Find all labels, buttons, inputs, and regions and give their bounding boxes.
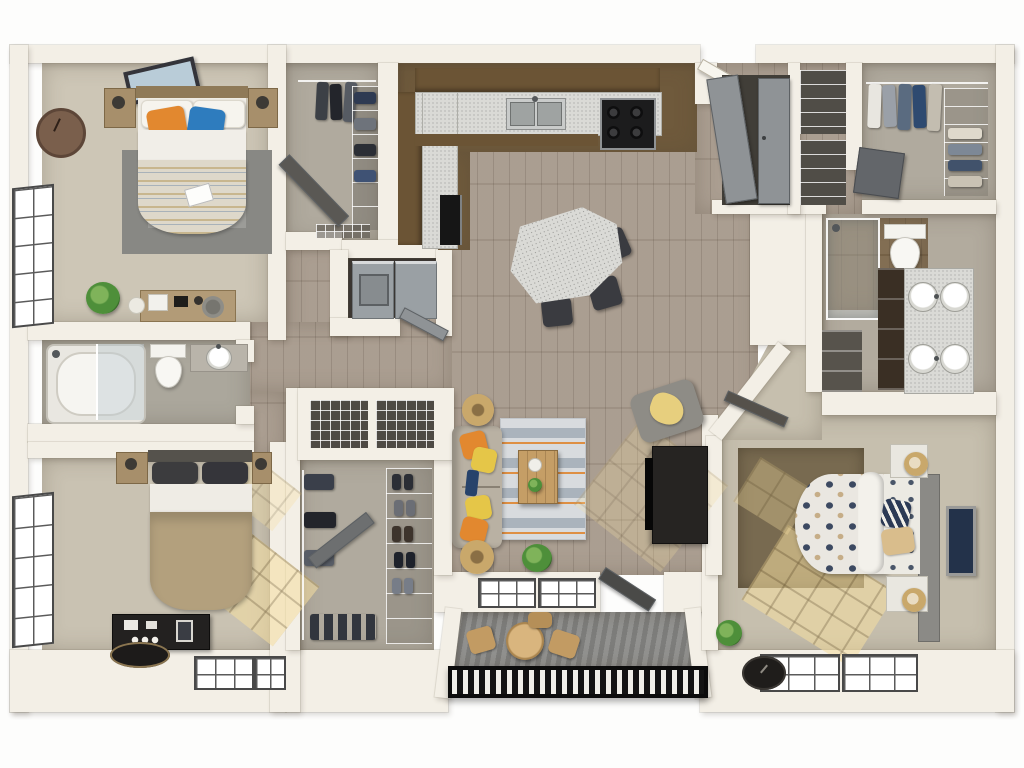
bed-fold-bedroom1 xyxy=(138,130,246,160)
hanging-clothes xyxy=(304,474,334,490)
closet1-wire-shelves xyxy=(352,86,378,230)
faucet-icon xyxy=(934,356,939,361)
window-living-2 xyxy=(538,578,596,608)
shoes-pair xyxy=(392,526,401,542)
closet1-basket xyxy=(316,224,370,238)
shoes-pair xyxy=(406,500,415,516)
floor-plan-canvas xyxy=(0,0,1024,768)
tv xyxy=(645,458,653,530)
burner xyxy=(607,106,620,119)
sink-basin-right xyxy=(537,102,562,126)
window-living-1 xyxy=(478,578,536,608)
door-handle-icon xyxy=(762,136,766,140)
woven-lamp xyxy=(904,452,928,476)
balcony-railing xyxy=(448,666,708,698)
hanging-clothes xyxy=(315,82,329,121)
printer xyxy=(148,294,168,311)
pillow-navy-striped xyxy=(880,498,912,530)
table-lamp-icon xyxy=(255,458,267,470)
folded-clothes xyxy=(354,144,376,156)
hanging-clothes xyxy=(912,85,926,128)
folded-clothes xyxy=(354,92,376,104)
wall-clock xyxy=(36,108,86,158)
desk-item-white xyxy=(146,621,157,629)
burner xyxy=(630,106,643,119)
burner xyxy=(630,126,643,139)
shelf-unit-basket-left xyxy=(310,400,368,448)
woven-lamp xyxy=(902,588,926,612)
closet2-dresser xyxy=(853,147,905,199)
pillow-dark xyxy=(202,462,248,484)
bed-headboard-bedroom1 xyxy=(136,86,248,98)
vanity-stool-white xyxy=(128,297,145,314)
folded-clothes-stack xyxy=(948,128,982,139)
window-bedroom2-left xyxy=(12,492,54,648)
shower-glass xyxy=(96,344,144,420)
folded-clothes-stack xyxy=(948,176,982,187)
tablet xyxy=(176,620,193,642)
bed-headboard-master xyxy=(918,474,940,642)
hanging-clothes xyxy=(882,85,897,128)
shoes-pair xyxy=(392,474,401,490)
wall-bath1-right-b xyxy=(236,406,254,424)
window-bedroom2-bottom-2 xyxy=(254,656,286,690)
wall-outer-bottom-mid xyxy=(286,650,448,712)
round-side-table xyxy=(462,394,494,426)
desk-stool xyxy=(202,296,224,318)
faucet-icon xyxy=(532,96,538,102)
hanging-clothes xyxy=(927,84,942,132)
washer-door xyxy=(359,274,389,306)
bath2-drawer-tower xyxy=(878,268,904,390)
window-bedroom2-bottom-1 xyxy=(194,656,254,690)
closet2-rod xyxy=(866,82,988,84)
closet1-rod xyxy=(298,80,376,82)
wall-bath2-bottom xyxy=(822,392,996,415)
table-lamp-icon xyxy=(125,458,137,470)
bed-sheet-bedroom2 xyxy=(150,484,252,512)
window-master-2 xyxy=(842,654,918,692)
shoes-pair xyxy=(394,552,403,568)
wall-outer-top xyxy=(10,45,700,63)
shoes-pair xyxy=(392,578,401,594)
faucet-icon xyxy=(216,344,221,349)
round-side-table xyxy=(460,540,494,574)
hanging-clothes xyxy=(867,84,882,128)
picture-frame-master xyxy=(946,506,976,576)
pillow-dark xyxy=(152,462,198,484)
linen-nook xyxy=(822,330,862,392)
coffee-table-bowl xyxy=(528,458,542,472)
oval-rug-bedroom2 xyxy=(110,642,170,668)
vanity-sink xyxy=(940,282,970,312)
shoes-pair xyxy=(406,552,415,568)
wall-bath2-left xyxy=(806,214,822,392)
wall-living-bottom-right xyxy=(664,572,706,612)
vanity-sink xyxy=(940,344,970,374)
hanging-clothes xyxy=(897,84,912,130)
faucet-icon xyxy=(934,294,939,299)
wall-top-band-right-b xyxy=(862,200,996,214)
range-stove xyxy=(600,98,656,150)
table-lamp-icon xyxy=(112,96,125,109)
tv-console xyxy=(652,446,708,544)
burner xyxy=(607,126,620,139)
shower-master xyxy=(826,218,880,320)
shoes-pair xyxy=(404,474,413,490)
shoes-pair xyxy=(394,500,403,516)
sink-basin-left xyxy=(510,102,535,126)
wall-bath1-bottom xyxy=(28,424,254,442)
folded-clothes xyxy=(354,118,376,130)
wall-laundry-right xyxy=(436,250,452,336)
coffee-table-plant xyxy=(528,478,542,492)
showerhead-icon xyxy=(52,350,60,358)
dishwasher xyxy=(440,195,462,245)
bed-roll-master xyxy=(858,472,884,574)
wall-laundry-bottom xyxy=(330,318,400,336)
vanity-sink xyxy=(206,346,232,370)
wall-outer-top-right xyxy=(756,45,1014,63)
kitchen-cabinet-front-strip xyxy=(415,134,598,146)
patio-chair xyxy=(528,612,552,628)
window-bedroom1-left xyxy=(12,184,54,328)
wall-bath1-top xyxy=(28,322,250,340)
folded-clothes xyxy=(354,170,376,182)
dryer xyxy=(395,261,437,319)
wire-closet-upper xyxy=(800,70,846,134)
potted-plant-bedroom1 xyxy=(86,282,120,314)
shoes-row-bottom xyxy=(310,614,376,640)
desk-item-white xyxy=(124,620,138,630)
wire-closet-lower xyxy=(800,140,846,205)
shoes-pair xyxy=(404,578,413,594)
folded-clothes-stack xyxy=(948,160,982,171)
hanging-clothes xyxy=(329,84,342,120)
laptop xyxy=(174,296,188,307)
table-lamp-icon xyxy=(256,96,269,109)
tan-duvet-bedroom2 xyxy=(150,512,252,610)
kitchen-upper-cabinets-top xyxy=(415,68,660,92)
showerhead-icon xyxy=(832,224,840,232)
hanging-clothes xyxy=(304,512,336,528)
potted-plant-master xyxy=(716,620,742,646)
shelf-unit-basket-right xyxy=(376,400,434,448)
pillow-tan xyxy=(880,526,915,556)
potted-plant-window xyxy=(522,544,552,572)
bed-headboard-bedroom2 xyxy=(148,450,252,462)
folded-clothes-stack xyxy=(948,144,982,155)
shoes-pair xyxy=(404,526,413,542)
wall-closet1-right xyxy=(378,63,398,240)
storage-cabinet-door xyxy=(758,78,790,204)
wall-clock-master xyxy=(742,656,786,690)
wall-outer-right xyxy=(996,45,1014,712)
